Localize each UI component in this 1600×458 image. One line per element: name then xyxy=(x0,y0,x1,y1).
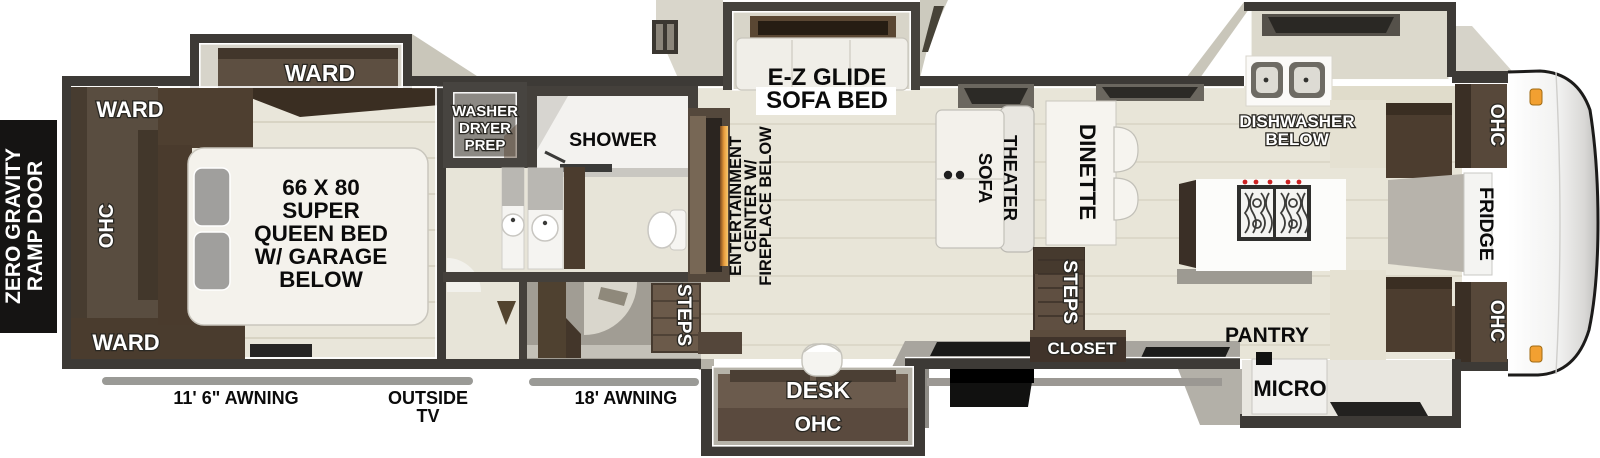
svg-text:MICRO: MICRO xyxy=(1253,376,1326,401)
svg-text:BELOW: BELOW xyxy=(279,267,364,292)
svg-text:WARD: WARD xyxy=(285,60,355,86)
svg-text:SHOWER: SHOWER xyxy=(569,129,657,151)
svg-text:OHC: OHC xyxy=(1486,104,1507,147)
svg-text:RAMP DOOR: RAMP DOOR xyxy=(24,161,47,291)
svg-text:WASHER: WASHER xyxy=(452,103,518,120)
svg-text:W/ GARAGE: W/ GARAGE xyxy=(255,244,388,269)
svg-text:FIREPLACE BELOW: FIREPLACE BELOW xyxy=(757,126,775,286)
svg-text:18' AWNING: 18' AWNING xyxy=(575,388,678,408)
svg-text:CLOSET: CLOSET xyxy=(1048,339,1118,358)
svg-text:OHC: OHC xyxy=(1486,300,1507,343)
svg-text:STEPS: STEPS xyxy=(673,284,694,346)
svg-text:66 X 80: 66 X 80 xyxy=(282,175,360,200)
svg-text:11' 6" AWNING: 11' 6" AWNING xyxy=(173,388,298,408)
svg-text:PREP: PREP xyxy=(465,137,506,154)
svg-text:DRYER: DRYER xyxy=(459,120,511,137)
svg-text:FRIDGE: FRIDGE xyxy=(1475,187,1497,261)
svg-text:WARD: WARD xyxy=(96,97,163,122)
svg-text:OUTSIDE: OUTSIDE xyxy=(388,388,468,408)
svg-text:SOFA BED: SOFA BED xyxy=(766,87,888,114)
svg-text:BELOW: BELOW xyxy=(1265,130,1329,149)
svg-text:OHC: OHC xyxy=(795,413,842,436)
svg-text:QUEEN BED: QUEEN BED xyxy=(254,221,388,246)
svg-text:STEPS: STEPS xyxy=(1059,260,1081,324)
svg-text:DISHWASHER: DISHWASHER xyxy=(1239,112,1354,131)
svg-text:SUPER: SUPER xyxy=(282,198,360,223)
svg-text:THEATER: THEATER xyxy=(1000,135,1021,221)
svg-text:TV: TV xyxy=(416,406,439,426)
svg-text:SOFA: SOFA xyxy=(975,153,996,203)
svg-text:WARD: WARD xyxy=(92,330,159,355)
svg-text:DESK: DESK xyxy=(786,377,850,403)
svg-text:ZERO GRAVITY: ZERO GRAVITY xyxy=(2,148,25,304)
svg-text:DINETTE: DINETTE xyxy=(1075,124,1100,220)
svg-text:OHC: OHC xyxy=(96,204,118,248)
svg-text:PANTRY: PANTRY xyxy=(1225,324,1309,347)
